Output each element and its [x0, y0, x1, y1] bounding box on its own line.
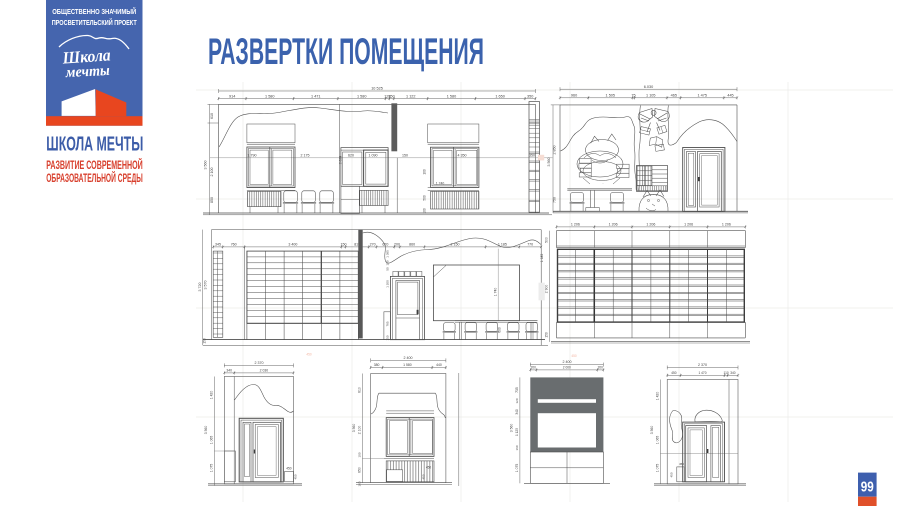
svg-text:1 740: 1 740	[493, 288, 497, 297]
svg-text:850: 850	[210, 197, 214, 203]
svg-text:2 370: 2 370	[255, 361, 264, 365]
svg-text:450: 450	[426, 465, 432, 469]
svg-text:1 185: 1 185	[540, 254, 544, 263]
svg-text:1 420: 1 420	[656, 392, 660, 401]
svg-text:50: 50	[385, 267, 389, 271]
svg-text:860: 860	[409, 243, 415, 247]
svg-text:450: 450	[421, 474, 425, 479]
svg-text:600: 600	[498, 327, 502, 333]
svg-text:ОБРАЗОВАТЕЛЬНОЙ СРЕДЫ: ОБРАЗОВАТЕЛЬНОЙ СРЕДЫ	[46, 170, 143, 185]
svg-text:2 100: 2 100	[358, 426, 362, 435]
svg-text:465: 465	[671, 94, 677, 98]
svg-text:450: 450	[679, 462, 684, 466]
svg-text:450: 450	[306, 353, 312, 357]
svg-text:960: 960	[571, 94, 577, 98]
svg-text:345: 345	[215, 243, 221, 247]
svg-text:270: 270	[370, 243, 376, 247]
svg-text:100: 100	[358, 452, 362, 457]
svg-text:1 740: 1 740	[436, 182, 445, 186]
svg-text:1 065: 1 065	[656, 436, 660, 445]
svg-text:440: 440	[436, 363, 442, 367]
svg-text:760: 760	[231, 243, 237, 247]
svg-text:2 850: 2 850	[552, 146, 556, 155]
svg-text:3 570: 3 570	[204, 281, 208, 290]
svg-text:3 560: 3 560	[650, 426, 654, 435]
svg-text:450: 450	[286, 467, 292, 471]
svg-text:РАЗВЕРТКИ ПОМЕЩЕНИЯ: РАЗВЕРТКИ ПОМЕЩЕНИЯ	[208, 31, 484, 72]
svg-text:1 580: 1 580	[447, 94, 457, 98]
svg-text:100: 100	[358, 481, 362, 486]
svg-text:770: 770	[527, 243, 533, 247]
svg-text:200: 200	[394, 243, 400, 247]
svg-text:1 206: 1 206	[571, 223, 580, 227]
svg-text:ОБЩЕСТВЕННО ЗНАЧИМЫЙ: ОБЩЕСТВЕННО ЗНАЧИМЫЙ	[52, 7, 136, 16]
svg-text:1 075: 1 075	[656, 464, 660, 473]
svg-text:450: 450	[670, 472, 674, 477]
svg-text:2 370: 2 370	[698, 363, 707, 367]
svg-text:1 200: 1 200	[385, 280, 389, 288]
svg-text:3 560: 3 560	[203, 161, 207, 170]
svg-text:3 560: 3 560	[510, 424, 514, 433]
svg-text:2 400: 2 400	[404, 356, 413, 360]
svg-text:1 475: 1 475	[697, 94, 707, 98]
svg-text:450: 450	[571, 354, 577, 358]
svg-text:3 400: 3 400	[288, 243, 297, 247]
svg-text:..: ..	[602, 181, 604, 185]
svg-text:1 206: 1 206	[684, 223, 693, 227]
svg-text:450: 450	[294, 474, 298, 479]
svg-text:1 580: 1 580	[403, 363, 412, 367]
svg-text:750: 750	[552, 197, 556, 203]
svg-text:2 628: 2 628	[339, 156, 343, 165]
svg-text:120: 120	[515, 398, 519, 403]
svg-text:2 175: 2 175	[301, 153, 310, 157]
svg-text:445: 445	[727, 94, 733, 98]
svg-text:200: 200	[531, 366, 537, 370]
svg-text:1 790: 1 790	[248, 153, 257, 157]
svg-text:1 122: 1 122	[406, 94, 416, 98]
svg-text:2 030: 2 030	[260, 369, 269, 373]
svg-text:6.030: 6.030	[644, 85, 654, 89]
svg-text:1 105: 1 105	[646, 94, 656, 98]
svg-text:РАЗВИТИЕ СОВРЕМЕННОЙ: РАЗВИТИЕ СОВРЕМЕННОЙ	[46, 157, 143, 172]
svg-text:1 470: 1 470	[699, 371, 707, 375]
svg-text:650: 650	[358, 467, 362, 473]
svg-text:3 560: 3 560	[352, 424, 356, 433]
svg-text:ПРОСВЕТИТЕЛЬСКИЙ ПРОЕКТ: ПРОСВЕТИТЕЛЬСКИЙ ПРОЕКТ	[52, 18, 137, 27]
svg-text:100: 100	[422, 208, 426, 214]
svg-text:380: 380	[374, 363, 380, 367]
svg-text:160: 160	[515, 445, 519, 450]
svg-text:914: 914	[229, 94, 235, 98]
svg-text:3 720: 3 720	[198, 283, 202, 292]
svg-text:620: 620	[348, 153, 354, 157]
svg-text:75: 75	[631, 94, 635, 98]
svg-text:500: 500	[545, 237, 549, 243]
svg-text:1 580: 1 580	[357, 94, 367, 98]
svg-text:785: 785	[385, 321, 389, 326]
svg-text:2 000: 2 000	[563, 366, 571, 370]
svg-text:1 206: 1 206	[646, 223, 655, 227]
svg-text:150: 150	[385, 335, 389, 340]
svg-text:1 075: 1 075	[210, 464, 214, 473]
svg-text:110: 110	[724, 371, 729, 375]
svg-text:340: 340	[226, 369, 232, 373]
svg-text:150: 150	[388, 94, 394, 98]
svg-text:1 385: 1 385	[385, 250, 389, 258]
svg-text:620: 620	[382, 243, 388, 247]
svg-text:150: 150	[545, 332, 549, 338]
svg-text:340: 340	[730, 371, 736, 375]
svg-text:ШКОЛА МЕЧТЫ: ШКОЛА МЕЧТЫ	[46, 133, 143, 156]
svg-text:2 900: 2 900	[545, 285, 549, 294]
svg-text:4 350: 4 350	[458, 153, 467, 157]
svg-text:1 125: 1 125	[515, 428, 519, 436]
svg-text:3 560: 3 560	[547, 158, 551, 167]
svg-text:350: 350	[529, 153, 535, 157]
svg-text:99: 99	[861, 478, 874, 495]
svg-text:1 650: 1 650	[495, 94, 505, 98]
svg-text:150: 150	[203, 338, 207, 344]
svg-text:2 400: 2 400	[563, 360, 572, 364]
svg-text:500: 500	[422, 195, 426, 201]
svg-text:735: 735	[515, 387, 519, 393]
svg-text:100: 100	[422, 169, 426, 175]
svg-text:340: 340	[515, 409, 519, 415]
svg-text:450: 450	[671, 371, 677, 375]
svg-text:2 150: 2 150	[451, 243, 460, 247]
svg-text:350: 350	[527, 94, 533, 98]
svg-text:610: 610	[358, 387, 362, 393]
svg-text:150: 150	[341, 243, 347, 247]
svg-text:1 505: 1 505	[606, 94, 616, 98]
svg-text:1 206: 1 206	[722, 223, 731, 227]
svg-text:150: 150	[402, 153, 408, 157]
svg-text:1 090: 1 090	[369, 153, 378, 157]
svg-text:1 065: 1 065	[210, 436, 214, 445]
svg-text:10 525: 10 525	[371, 87, 383, 91]
svg-text:3 560: 3 560	[204, 426, 208, 435]
svg-text:1 206: 1 206	[609, 223, 618, 227]
svg-text:2 100: 2 100	[210, 168, 214, 177]
svg-text:1 420: 1 420	[210, 391, 214, 400]
svg-text:200: 200	[598, 366, 604, 370]
svg-text:1 471: 1 471	[311, 94, 321, 98]
svg-text:1 075: 1 075	[515, 464, 519, 473]
svg-text:610: 610	[210, 113, 214, 119]
svg-text:мечты: мечты	[64, 63, 110, 81]
svg-text:1 580: 1 580	[265, 94, 275, 98]
svg-text:150: 150	[385, 260, 389, 265]
